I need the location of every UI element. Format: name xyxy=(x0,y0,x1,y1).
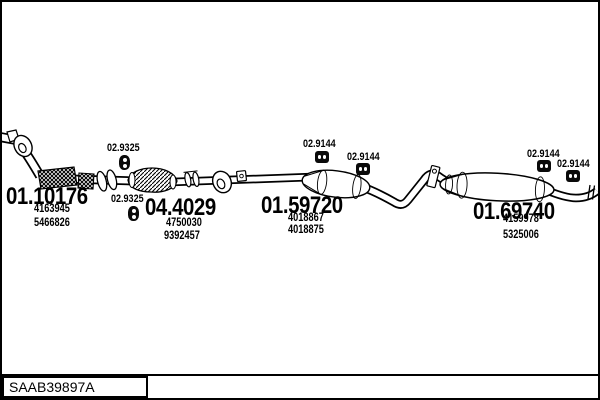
part-oem1-rear-silencer: 4159978 xyxy=(503,214,539,226)
mount-code-label-2: 02.9144 xyxy=(347,152,380,163)
rubber-grommet-icon-2 xyxy=(128,206,139,221)
part-oem1-mid-silencer: 4018867 xyxy=(288,213,324,225)
catalyst-drawing xyxy=(128,168,177,192)
part-oem2-rear-silencer: 5325006 xyxy=(503,230,539,242)
grommet-code-label-1: 02.9325 xyxy=(107,143,140,154)
exhaust-diagram-page: 02.9325 02.9325 02.9144 02.9144 02.9144 … xyxy=(0,0,600,400)
catalog-code: SAAB39897A xyxy=(9,379,95,396)
grommet-code-label-2: 02.9325 xyxy=(111,194,144,205)
part-oem1-front-pipe: 4163945 xyxy=(34,204,70,216)
flange-ring-drawing xyxy=(209,168,234,195)
mount-code-label-4: 02.9144 xyxy=(557,159,590,170)
part-oem2-front-pipe: 5466826 xyxy=(34,218,70,230)
rubber-mount-icon-1 xyxy=(315,151,329,163)
mount-code-label-3: 02.9144 xyxy=(527,149,560,160)
part-oem2-mid-silencer: 4018875 xyxy=(288,225,324,237)
rubber-mount-icon-3 xyxy=(537,160,551,172)
hanger-bracket-drawing xyxy=(237,171,247,182)
rubber-mount-icon-4 xyxy=(566,170,580,182)
rubber-mount-icon-2 xyxy=(356,163,370,175)
s-bend-pipe-drawing xyxy=(360,174,452,205)
mount-code-label-1: 02.9144 xyxy=(303,139,336,150)
catalog-code-box: SAAB39897A xyxy=(2,376,148,398)
rear-hanger-bracket-drawing xyxy=(427,165,440,187)
part-oem2-catalyst: 9392457 xyxy=(164,231,200,243)
rubber-grommet-icon-1 xyxy=(119,155,130,170)
part-oem1-catalyst: 4750030 xyxy=(166,218,202,230)
